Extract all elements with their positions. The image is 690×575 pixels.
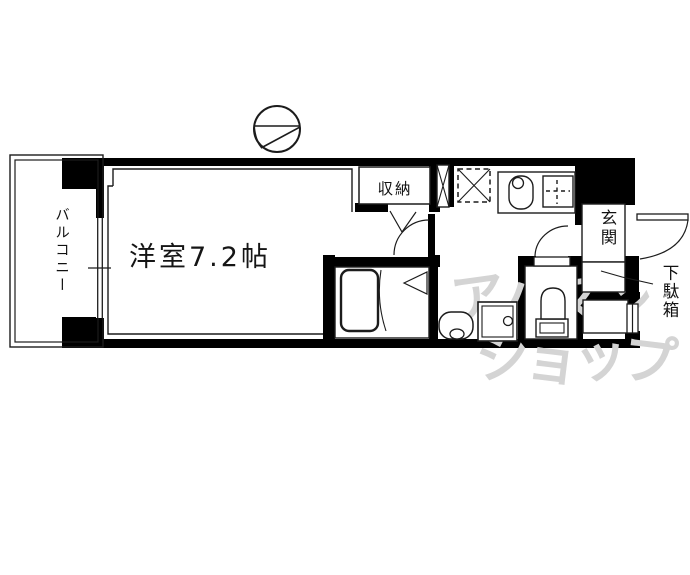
shoe-cabinet-label: 下駄箱: [657, 264, 681, 320]
stove-icon: [543, 176, 573, 207]
bathtub-icon: [341, 270, 378, 331]
lines-layer: [0, 0, 690, 575]
pipe-shaft-icon: [437, 165, 449, 207]
storage-nook-box: [583, 300, 628, 333]
right-window-icon: [627, 304, 638, 333]
entrance-door-icon: [637, 214, 688, 259]
closet-door-fold: [390, 211, 416, 232]
washer-space-icon: [458, 169, 490, 202]
entrance-label: 玄関: [595, 209, 619, 248]
washbasin-icon: [439, 312, 473, 339]
door-panel-with-knob-icon: [478, 302, 517, 341]
room-door-arc: [394, 220, 429, 255]
balcony-label: バルコニー: [51, 207, 72, 295]
north-compass-icon: [254, 106, 300, 152]
main-room-label: 洋室7.2帖: [129, 235, 271, 274]
faucet-icon: [513, 178, 524, 189]
shoe-cabinet-box: [582, 262, 625, 292]
floorplan-canvas: アパマン ショップ: [0, 0, 690, 575]
toilet-door-icon: [534, 226, 570, 266]
kitchen-counter: [498, 172, 575, 213]
closet-label: 収納: [360, 177, 430, 199]
